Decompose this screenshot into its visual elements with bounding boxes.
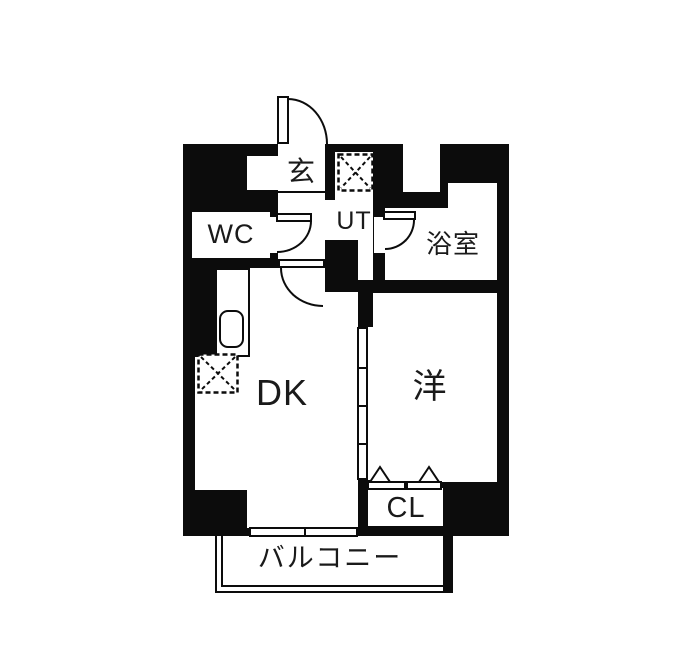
label-bathroom: 浴室 [412, 230, 494, 258]
label-utility: UT [335, 207, 373, 235]
label-toilet: WC [192, 220, 270, 249]
entrance-door-arc [288, 98, 328, 144]
refrigerator-placeholder-icon [197, 353, 239, 394]
sliding-door [357, 327, 368, 480]
label-balcony: バルコニー [225, 544, 435, 573]
wall-hall-dk [325, 240, 358, 292]
room-dk-bottom [247, 490, 358, 528]
balcony-right-wall [443, 528, 453, 593]
kitchen-sink [219, 310, 244, 348]
entrance-step-line [278, 191, 325, 193]
hall-door-leaf [278, 259, 325, 268]
label-entrance: 玄 [278, 157, 325, 187]
wall-kitchen-side [195, 268, 215, 357]
washing-machine-placeholder-icon [337, 153, 374, 192]
bathroom-door-leaf [383, 211, 416, 220]
label-closet: CL [375, 493, 437, 524]
label-dining-kitchen: DK [236, 374, 328, 413]
floor-plan: 玄 WC UT 浴室 DK 洋 CL バルコニー [0, 0, 679, 670]
entrance-step [247, 156, 280, 190]
closet-door-triangle-icons [362, 464, 446, 484]
outline-notch [403, 144, 440, 192]
label-western-room: 洋 [400, 369, 460, 406]
